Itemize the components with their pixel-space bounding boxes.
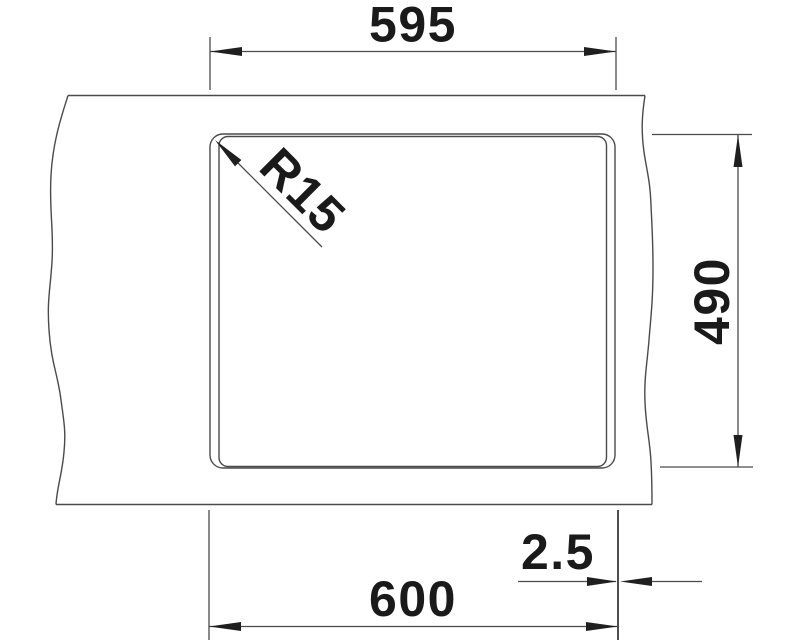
dimension-label-bottom-width: 600 xyxy=(369,571,457,627)
dimension-label-top-width: 595 xyxy=(369,0,457,53)
drawing-svg: 595 490 600 2.5 xyxy=(0,0,800,640)
dimension-top-width: 595 xyxy=(210,0,616,90)
radius-callout: R15 xyxy=(215,137,357,247)
dimension-label-corner-radius: R15 xyxy=(249,137,357,245)
arrowhead-bottom xyxy=(734,435,743,467)
arrowhead-left xyxy=(209,622,241,631)
dimension-height: 490 xyxy=(652,135,753,468)
arrowhead-left xyxy=(210,47,242,56)
dimension-label-edge-reveal: 2.5 xyxy=(521,524,595,580)
worktop xyxy=(48,96,653,505)
worktop-break-line-right xyxy=(642,96,653,505)
sink-installation-drawing: 595 490 600 2.5 xyxy=(0,0,800,640)
dimension-label-height: 490 xyxy=(684,257,740,345)
arrowhead-pointing-left xyxy=(620,577,652,586)
arrowhead-right xyxy=(586,622,618,631)
arrowhead-top xyxy=(734,135,743,167)
arrowhead-right xyxy=(584,47,616,56)
dimension-edge-reveal: 2.5 xyxy=(518,524,702,586)
worktop-break-line-left xyxy=(48,96,68,505)
